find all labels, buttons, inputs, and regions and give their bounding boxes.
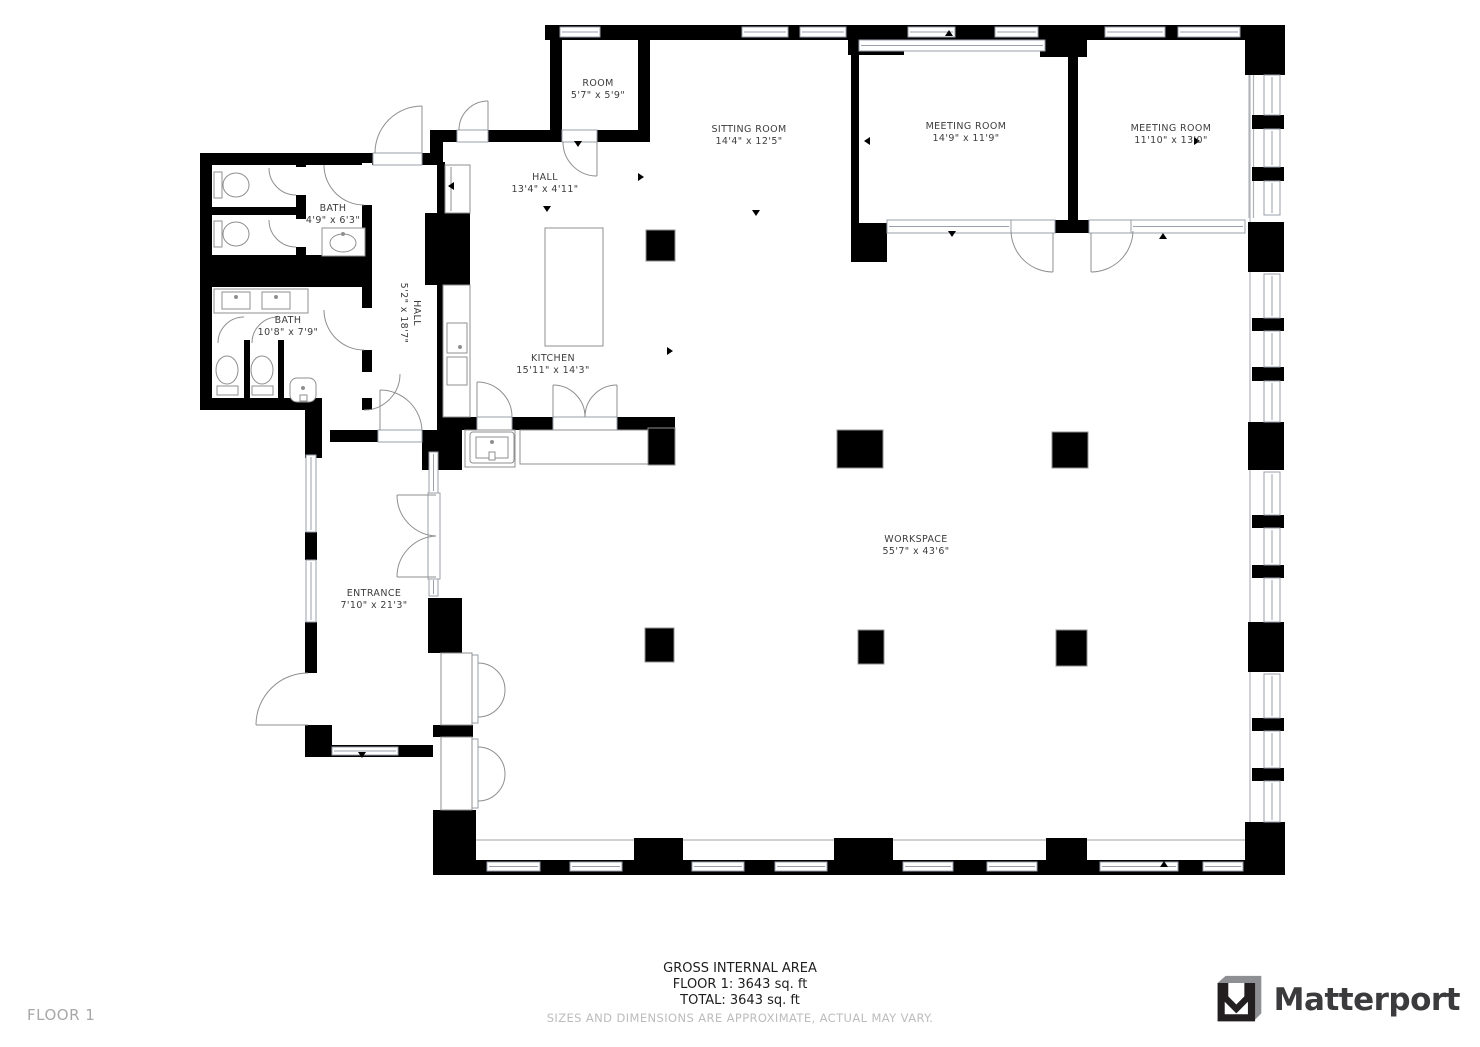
floor-plan-page: ROOM 5'7" x 5'9" SITTING ROOM 14'4" x 12… (0, 0, 1480, 1047)
room-dims-hall-top: 13'4" x 4'11" (511, 184, 578, 195)
niche (520, 430, 648, 464)
corner-sink (290, 378, 316, 402)
floor-plan-svg: ROOM 5'7" x 5'9" SITTING ROOM 14'4" x 12… (0, 0, 1480, 1047)
entrance-closet (441, 653, 472, 725)
room-label-meeting-room-2: MEETING ROOM (1131, 123, 1212, 134)
room-dims-bath-large: 10'8" x 7'9" (258, 327, 319, 338)
matterport-m-icon (1214, 972, 1264, 1028)
kitchen-appliance (447, 357, 467, 385)
room-label-bath-large: BATH (275, 315, 302, 326)
toilet (251, 356, 273, 395)
entrance-closet (441, 737, 472, 810)
room-dims-meeting-room-1: 14'9" x 11'9" (932, 133, 999, 144)
room-label-room: ROOM (582, 78, 613, 89)
kitchen-island (545, 228, 603, 346)
door-thresholds (373, 130, 1131, 579)
room-label-sitting-room: SITTING ROOM (711, 124, 786, 135)
room-dims-hall-vertical: 5'2" x 18'7" (398, 283, 409, 344)
room-label-hall-vertical: HALL (411, 300, 422, 326)
room-dims-sitting-room: 14'4" x 12'5" (715, 136, 782, 147)
floor-selector-label: FLOOR 1 (27, 1006, 95, 1024)
room-label-bath-small: BATH (320, 203, 347, 214)
room-label-meeting-room-1: MEETING ROOM (926, 121, 1007, 132)
room-dims-entrance: 7'10" x 21'3" (340, 600, 407, 611)
columns (645, 230, 1088, 666)
toilet (214, 172, 249, 198)
room-dims-room: 5'7" x 5'9" (571, 90, 625, 101)
matterport-branding: Matterport (1214, 972, 1460, 1028)
room-label-workspace: WORKSPACE (884, 534, 947, 545)
room-label-hall-top: HALL (532, 172, 558, 183)
toilet (214, 221, 249, 247)
room-dims-bath-small: 4'9" x 6'3" (306, 215, 360, 226)
kitchen-counter-upper (445, 165, 470, 213)
room-dims-kitchen: 15'11" x 14'3" (516, 365, 590, 376)
room-dims-meeting-room-2: 11'10" x 13'0" (1134, 135, 1208, 146)
toilet (216, 356, 238, 395)
room-label-kitchen: KITCHEN (531, 353, 575, 364)
room-label-entrance: ENTRANCE (347, 588, 402, 599)
room-dims-workspace: 55'7" x 43'6" (882, 546, 949, 557)
kitchen-sink (447, 323, 467, 353)
matterport-wordmark: Matterport (1274, 982, 1460, 1018)
